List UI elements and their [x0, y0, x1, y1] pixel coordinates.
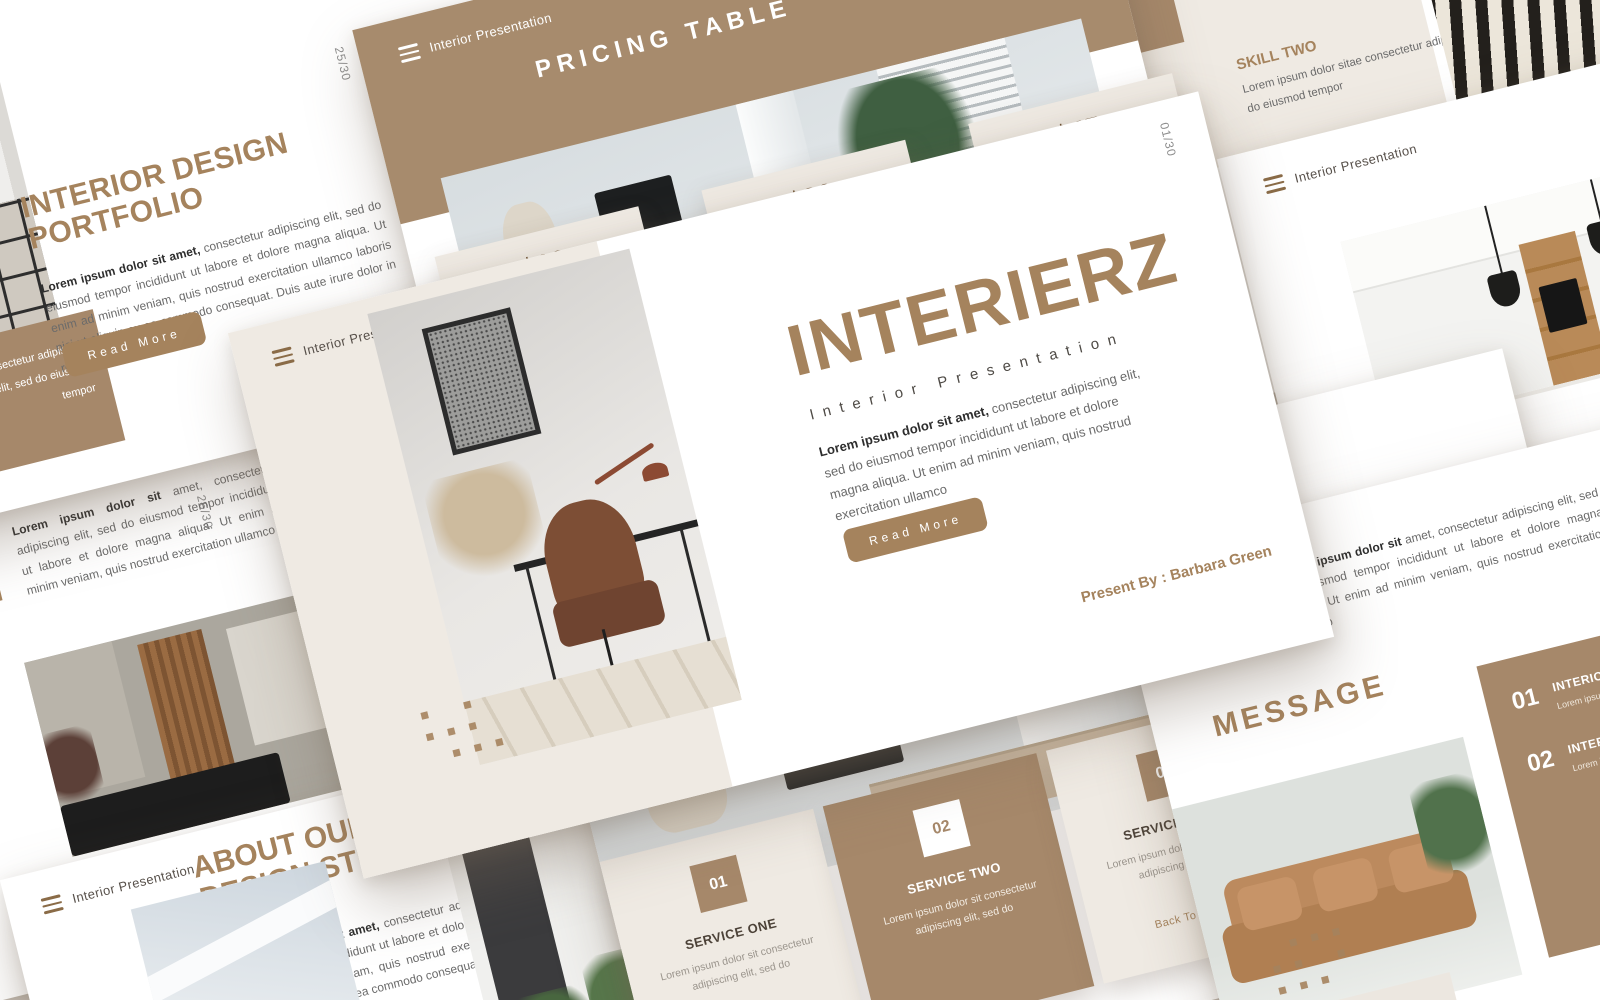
message-item: 01 INTERIOR Lorem ipsum — [1509, 622, 1600, 724]
item-label: INTERIOR — [1551, 666, 1600, 694]
beam-shape — [131, 874, 354, 1000]
dried-plant-shape — [421, 457, 557, 609]
pendant-head-shape — [1486, 270, 1523, 310]
service-number-badge: 01 — [689, 855, 747, 913]
message-title: MESSAGE — [1210, 669, 1390, 743]
service-number-badge: 02 — [913, 799, 971, 857]
template-collage: incididunt ut labore et dolore magna ali… — [0, 0, 1600, 1000]
cover-body: Lorem ipsum dolor sit amet, consectetur … — [817, 359, 1173, 528]
slide-header: Interior Presentation — [1263, 141, 1419, 194]
item-number: 02 — [1524, 745, 1557, 779]
title-fragment: N — [0, 567, 7, 615]
menu-icon[interactable] — [41, 894, 64, 914]
menu-icon[interactable] — [1263, 174, 1286, 194]
pendant-head-shape — [1586, 218, 1600, 258]
sofa-photo — [1172, 737, 1522, 1000]
page-number: 25/30 — [332, 45, 354, 82]
header-label: Interior Presentation — [1293, 141, 1418, 186]
page-number: 01/30 — [1157, 121, 1179, 158]
item-label: INTERIOR — [1566, 728, 1600, 756]
item-number: 01 — [1509, 683, 1542, 717]
lamp-head-shape — [640, 460, 669, 482]
presenter-credit: Present By : Barbara Green — [1079, 543, 1273, 607]
frame-shape — [421, 307, 542, 456]
